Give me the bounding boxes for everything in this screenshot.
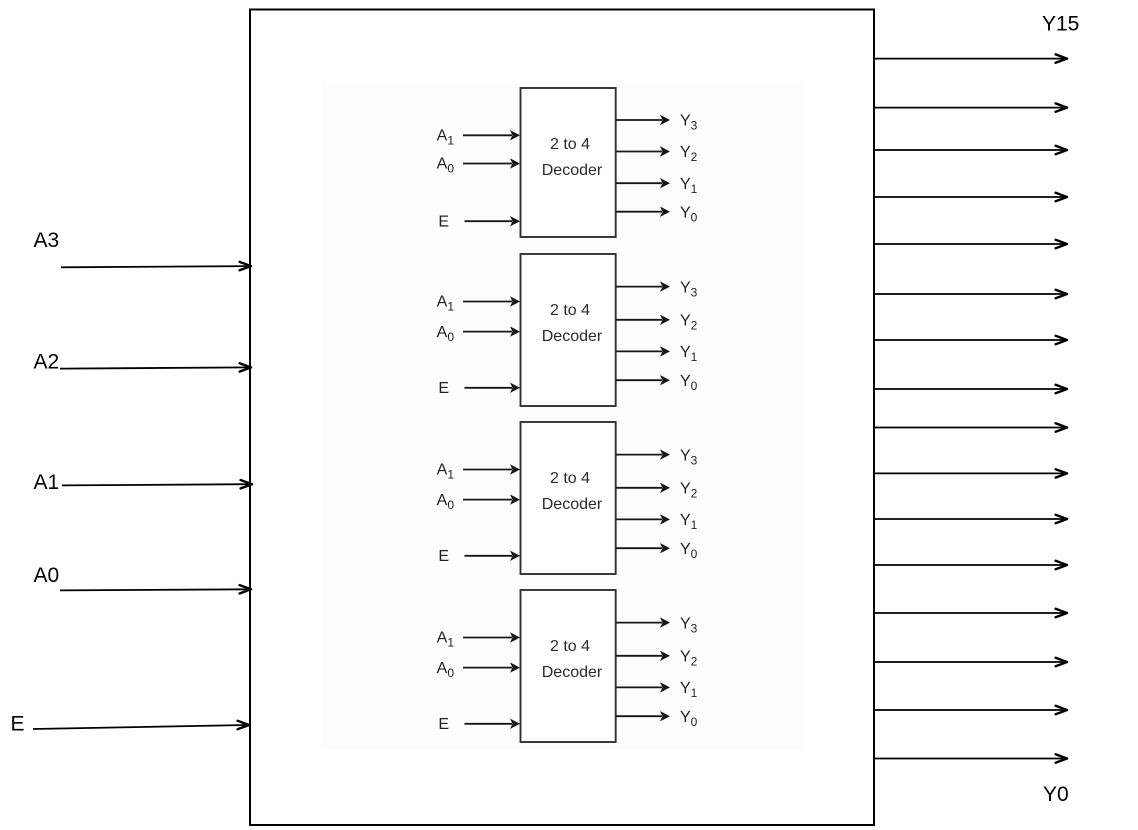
svg-text:Decoder: Decoder: [542, 664, 603, 681]
svg-text:A1: A1: [34, 471, 60, 494]
svg-text:Decoder: Decoder: [542, 496, 603, 513]
svg-text:A0: A0: [34, 564, 60, 587]
svg-text:2 to 4: 2 to 4: [550, 302, 590, 319]
svg-text:Decoder: Decoder: [542, 328, 603, 345]
svg-text:Y15: Y15: [1042, 13, 1079, 36]
svg-text:Y0: Y0: [1043, 783, 1069, 806]
svg-text:E: E: [438, 548, 449, 565]
svg-text:2 to 4: 2 to 4: [550, 638, 590, 655]
svg-text:E: E: [11, 713, 25, 736]
svg-text:2 to 4: 2 to 4: [550, 136, 590, 153]
svg-text:Decoder: Decoder: [542, 162, 603, 179]
svg-text:E: E: [438, 213, 449, 230]
svg-text:A3: A3: [34, 229, 60, 252]
svg-text:2 to 4: 2 to 4: [550, 470, 590, 487]
svg-text:A2: A2: [34, 350, 60, 373]
svg-text:E: E: [438, 380, 449, 397]
svg-text:E: E: [438, 716, 449, 733]
